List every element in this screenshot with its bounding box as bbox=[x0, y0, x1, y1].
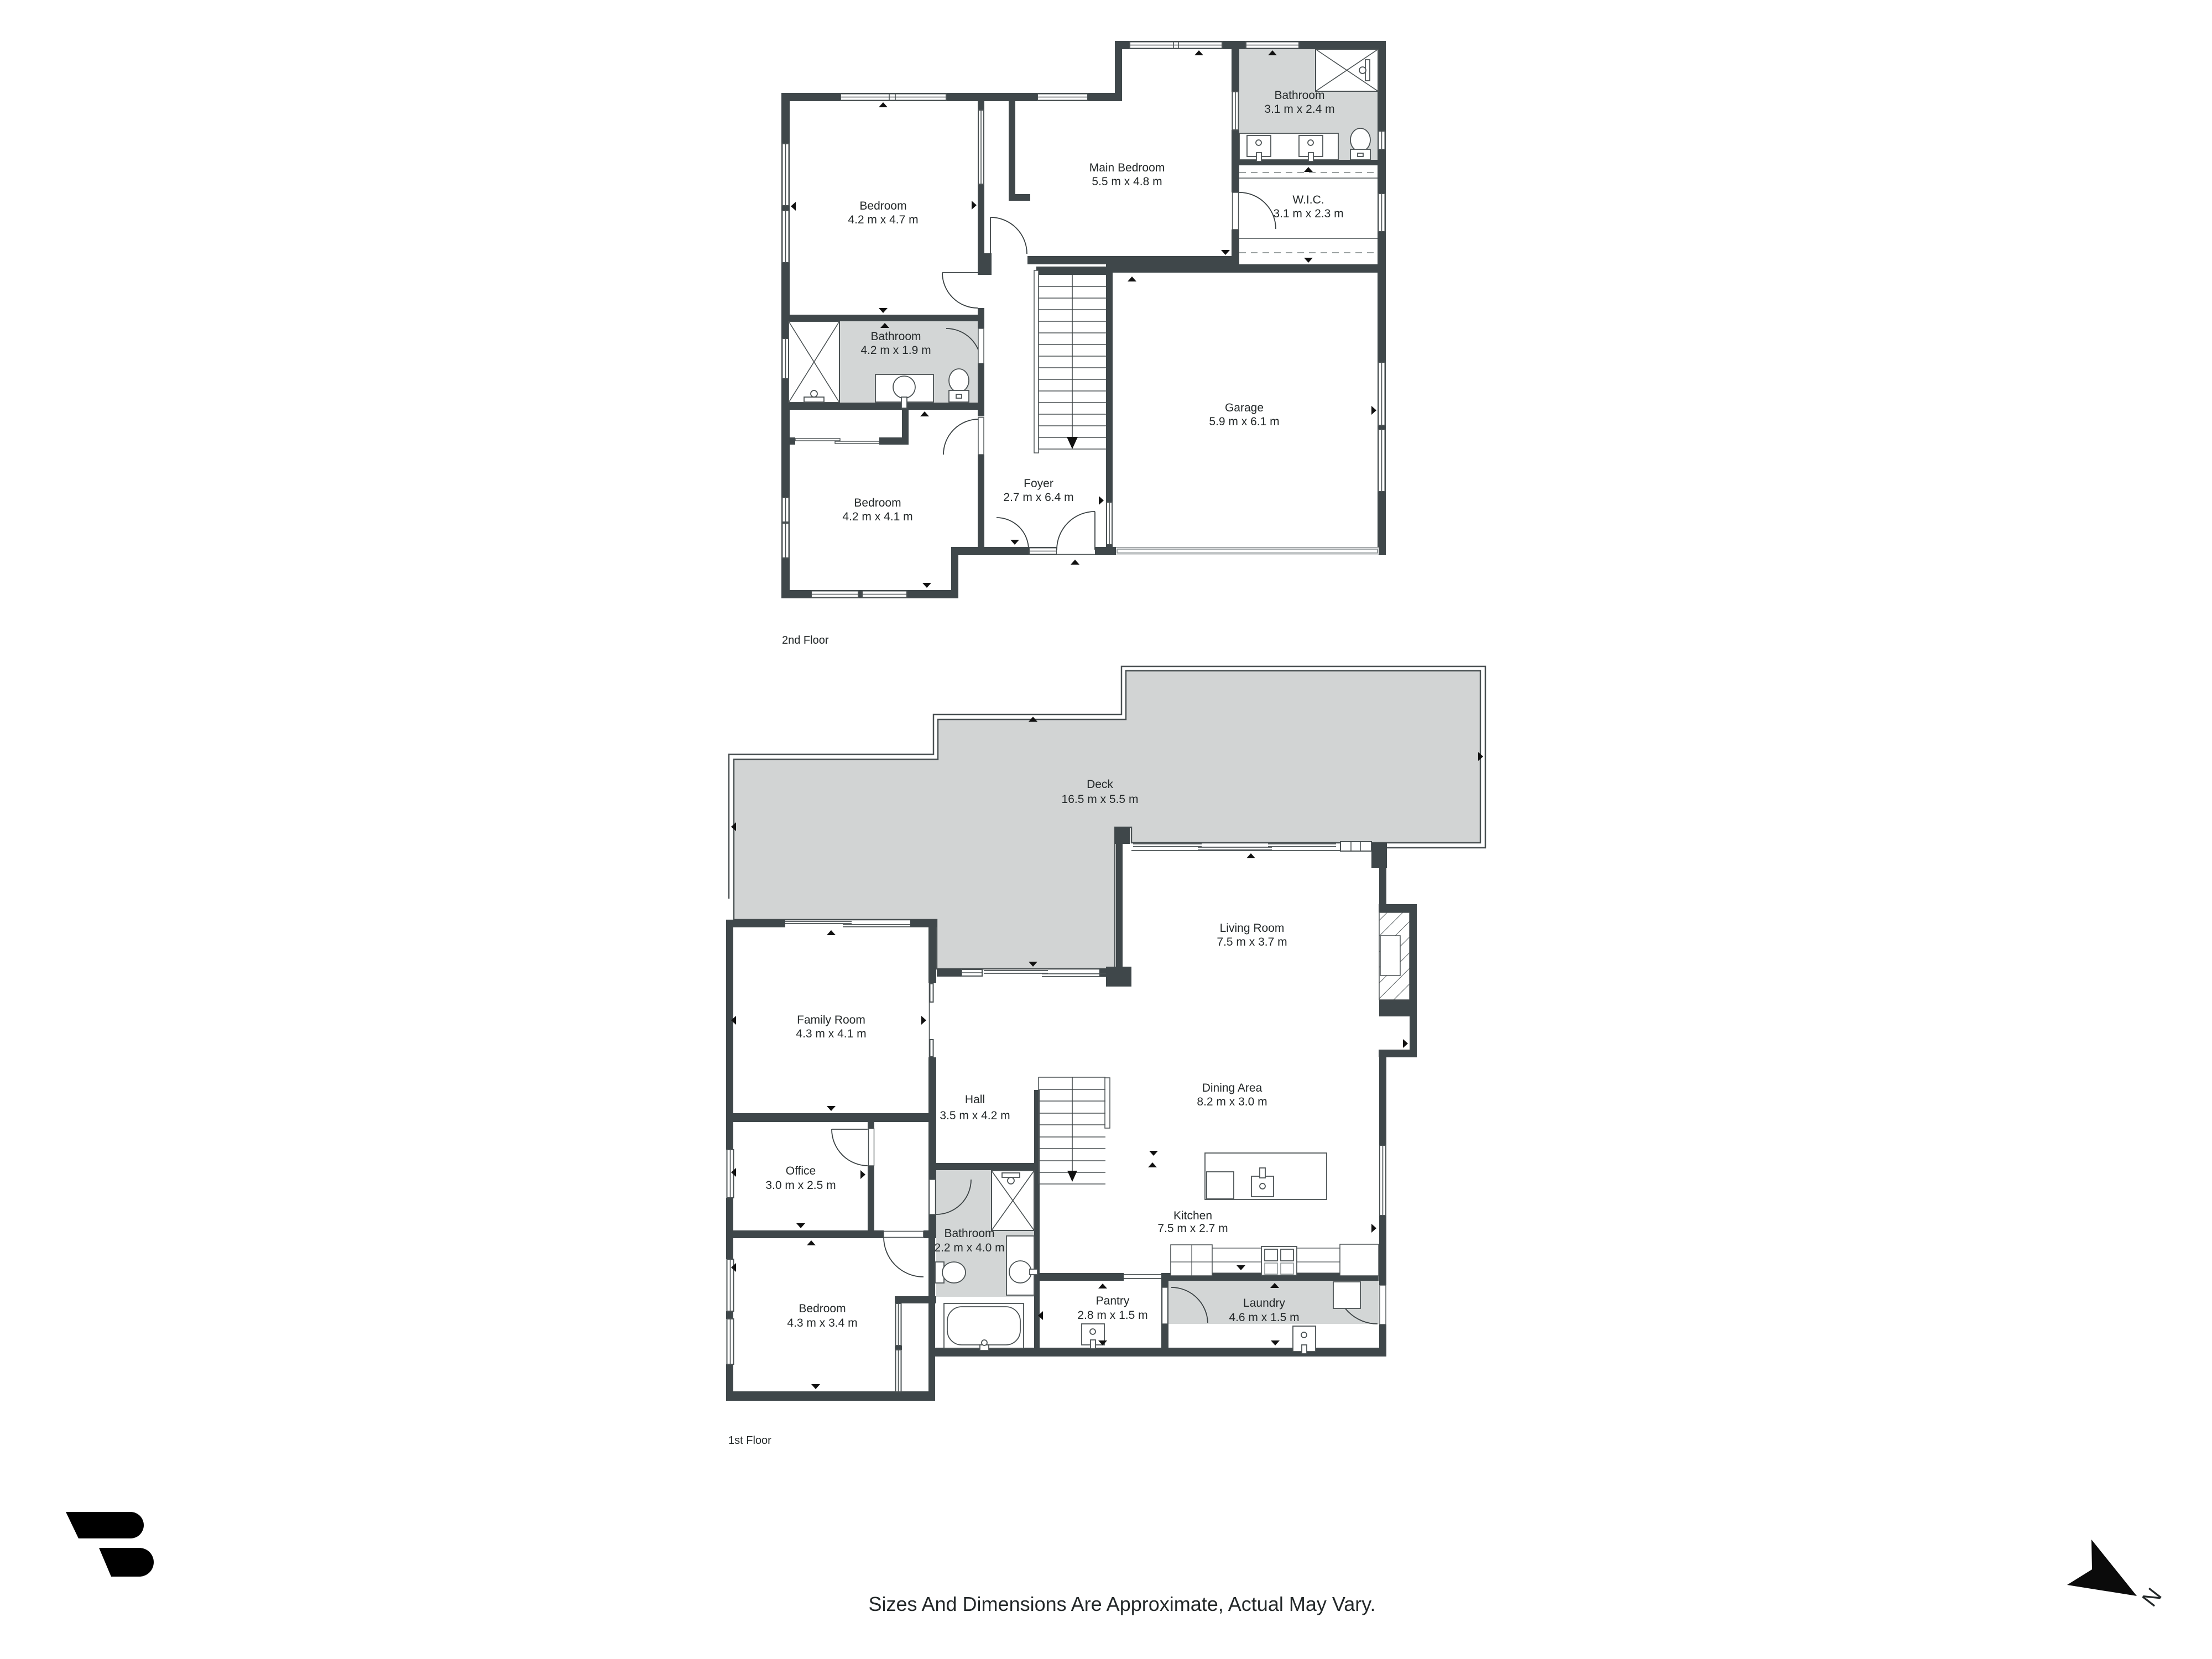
svg-text:Hall: Hall bbox=[965, 1093, 985, 1106]
svg-text:4.3 m x 3.4 m: 4.3 m x 3.4 m bbox=[787, 1317, 857, 1329]
svg-text:3.1 m x 2.4 m: 3.1 m x 2.4 m bbox=[1264, 103, 1334, 116]
svg-text:W.I.C.: W.I.C. bbox=[1292, 194, 1324, 206]
svg-text:2.7 m x 6.4 m: 2.7 m x 6.4 m bbox=[1003, 491, 1073, 504]
svg-text:Garage: Garage bbox=[1225, 401, 1264, 414]
svg-text:Bathroom: Bathroom bbox=[944, 1227, 994, 1240]
svg-text:Main Bedroom: Main Bedroom bbox=[1089, 161, 1165, 174]
svg-text:3.0 m x 2.5 m: 3.0 m x 2.5 m bbox=[765, 1179, 836, 1192]
svg-text:Foyer: Foyer bbox=[1024, 477, 1053, 490]
svg-text:Bedroom: Bedroom bbox=[854, 497, 901, 509]
svg-text:16.5 m x 5.5 m: 16.5 m x 5.5 m bbox=[1062, 793, 1139, 806]
svg-text:Bathroom: Bathroom bbox=[1274, 89, 1324, 102]
svg-text:4.2 m x 1.9 m: 4.2 m x 1.9 m bbox=[860, 344, 931, 357]
svg-text:2.8 m x 1.5 m: 2.8 m x 1.5 m bbox=[1077, 1309, 1147, 1322]
svg-text:1st Floor: 1st Floor bbox=[728, 1434, 771, 1447]
svg-text:4.2 m x 4.7 m: 4.2 m x 4.7 m bbox=[848, 213, 918, 226]
svg-text:2.2 m x 4.0 m: 2.2 m x 4.0 m bbox=[934, 1241, 1004, 1254]
svg-text:4.6 m x 1.5 m: 4.6 m x 1.5 m bbox=[1229, 1311, 1299, 1324]
svg-text:Sizes And Dimensions Are Appro: Sizes And Dimensions Are Approximate, Ac… bbox=[868, 1593, 1375, 1615]
svg-text:Living Room: Living Room bbox=[1220, 922, 1285, 935]
svg-text:8.2 m x 3.0 m: 8.2 m x 3.0 m bbox=[1197, 1095, 1267, 1108]
svg-text:Bathroom: Bathroom bbox=[870, 330, 921, 343]
svg-text:Family Room: Family Room bbox=[797, 1014, 865, 1026]
svg-text:4.2 m x 4.1 m: 4.2 m x 4.1 m bbox=[842, 510, 912, 523]
svg-text:4.3 m x 4.1 m: 4.3 m x 4.1 m bbox=[796, 1027, 866, 1040]
svg-text:Bedroom: Bedroom bbox=[859, 200, 906, 212]
svg-text:2nd Floor: 2nd Floor bbox=[782, 634, 829, 646]
svg-text:Laundry: Laundry bbox=[1243, 1297, 1285, 1310]
svg-text:Pantry: Pantry bbox=[1096, 1295, 1130, 1307]
svg-text:Bedroom: Bedroom bbox=[799, 1302, 846, 1315]
svg-text:Deck: Deck bbox=[1087, 778, 1113, 791]
svg-text:7.5 m x 3.7 m: 7.5 m x 3.7 m bbox=[1217, 936, 1287, 948]
svg-text:Kitchen: Kitchen bbox=[1173, 1209, 1212, 1222]
svg-text:5.9 m x 6.1 m: 5.9 m x 6.1 m bbox=[1209, 415, 1279, 428]
svg-text:5.5 m x 4.8 m: 5.5 m x 4.8 m bbox=[1092, 175, 1162, 188]
svg-text:7.5 m x 2.7 m: 7.5 m x 2.7 m bbox=[1157, 1222, 1228, 1235]
svg-text:Office: Office bbox=[786, 1165, 816, 1177]
svg-text:Dining Area: Dining Area bbox=[1202, 1082, 1262, 1094]
svg-text:3.1 m x 2.3 m: 3.1 m x 2.3 m bbox=[1273, 207, 1343, 220]
svg-text:3.5 m x 4.2 m: 3.5 m x 4.2 m bbox=[940, 1109, 1010, 1122]
